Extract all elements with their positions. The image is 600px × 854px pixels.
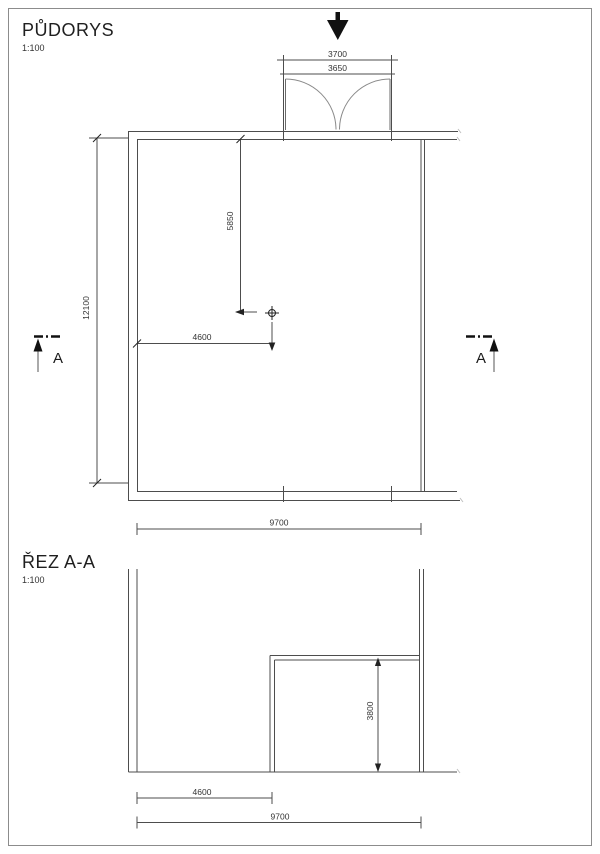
label-12100: 12100 <box>81 296 91 320</box>
entrance-arrow-icon <box>327 12 349 40</box>
label-section-a-right: A <box>476 350 486 367</box>
dimension-total-height <box>89 134 128 487</box>
floor-plan <box>89 12 463 535</box>
section-drawing <box>129 569 461 829</box>
architectural-drawing: 3700 3650 12100 5850 4600 9700 3800 4600… <box>0 0 600 854</box>
label-3650: 3650 <box>328 63 347 73</box>
label-section-a-left: A <box>53 350 63 367</box>
label-5850: 5850 <box>225 211 235 230</box>
label-4600-plan: 4600 <box>193 332 212 342</box>
section-interior-box <box>270 656 420 773</box>
section-walls <box>129 569 461 773</box>
label-4600-section: 4600 <box>193 787 212 797</box>
crosshair-icon <box>265 306 279 320</box>
dimension-box-height <box>375 658 381 773</box>
plan-walls <box>128 129 463 502</box>
label-9700-plan: 9700 <box>270 518 289 528</box>
drawing-sheet: PŮDORYS 1:100 ŘEZ A-A 1:100 <box>0 0 600 854</box>
label-9700-section: 9700 <box>271 812 290 822</box>
dimension-interior-vertical <box>235 135 257 315</box>
label-3800: 3800 <box>365 701 375 720</box>
label-3700: 3700 <box>328 49 347 59</box>
